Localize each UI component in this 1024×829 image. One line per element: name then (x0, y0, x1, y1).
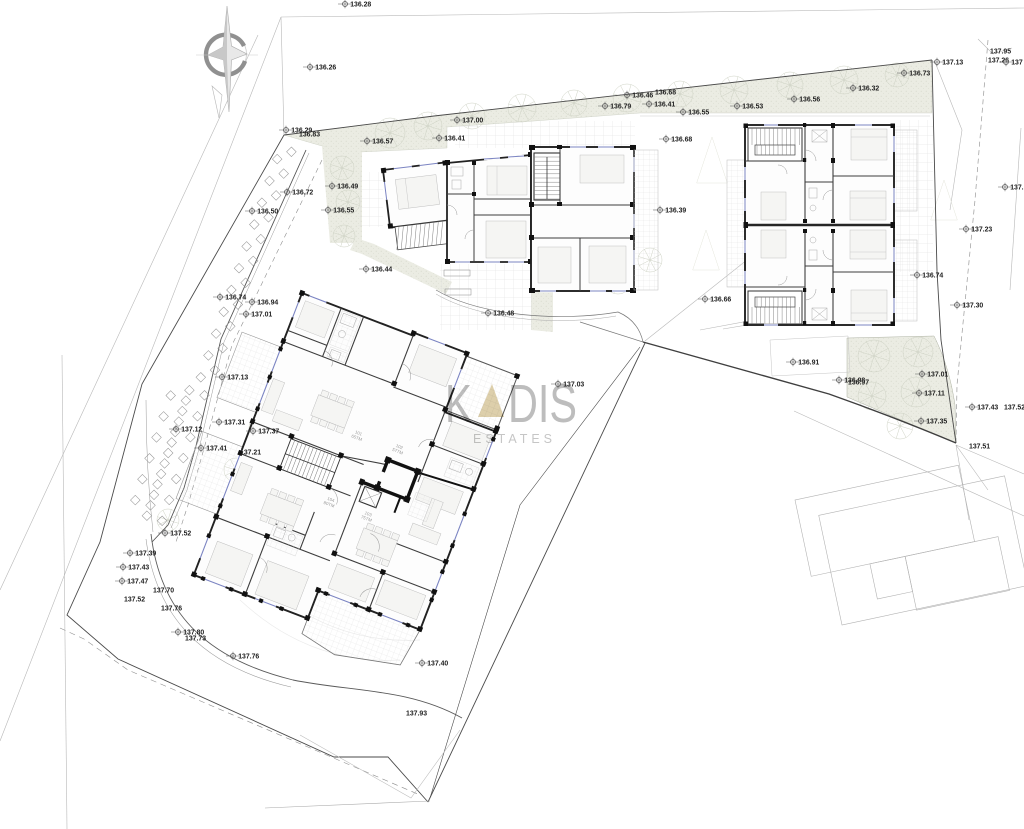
svg-text:136.41: 136.41 (654, 102, 675, 109)
svg-text:136.49: 136.49 (337, 184, 358, 191)
svg-text:137.00: 137.00 (462, 118, 483, 125)
svg-text:137.52: 137.52 (1004, 405, 1024, 412)
svg-text:137.93: 137.93 (406, 711, 427, 718)
svg-text:137.52: 137.52 (170, 531, 191, 538)
svg-text:136.32: 136.32 (858, 86, 879, 93)
svg-text:136.73: 136.73 (909, 71, 930, 78)
svg-text:136.74: 136.74 (922, 273, 943, 280)
svg-text:137.30: 137.30 (962, 303, 983, 310)
svg-text:K: K (445, 374, 472, 434)
svg-text:136.28: 136.28 (350, 2, 371, 9)
svg-text:136.53: 136.53 (742, 104, 763, 111)
svg-text:137.31: 137.31 (224, 420, 245, 427)
svg-text:137.40: 137.40 (427, 661, 448, 668)
svg-text:137.70: 137.70 (153, 588, 174, 595)
svg-text:136.83: 136.83 (299, 132, 320, 139)
svg-text:137.: 137. (1010, 185, 1023, 192)
svg-text:137: 137 (1011, 60, 1023, 67)
svg-text:136.41: 136.41 (444, 136, 465, 143)
svg-text:136.72: 136.72 (292, 190, 313, 197)
svg-text:137.11: 137.11 (924, 391, 945, 398)
svg-text:136.46: 136.46 (632, 93, 653, 100)
svg-text:136.91: 136.91 (798, 360, 819, 367)
svg-text:136.57: 136.57 (372, 139, 393, 146)
svg-text:137.13: 137.13 (942, 60, 963, 67)
svg-text:136.39: 136.39 (665, 208, 686, 215)
svg-text:137.01: 137.01 (927, 372, 948, 379)
svg-text:136.68: 136.68 (655, 90, 676, 97)
svg-text:136.68: 136.68 (671, 137, 692, 144)
svg-text:137.37: 137.37 (258, 429, 279, 436)
svg-text:137.47: 137.47 (127, 579, 148, 586)
svg-text:137.03: 137.03 (563, 382, 584, 389)
svg-text:136.79: 136.79 (610, 104, 631, 111)
svg-text:136.26: 136.26 (315, 65, 336, 72)
svg-text:136.44: 136.44 (371, 267, 392, 274)
svg-text:137.41: 137.41 (206, 446, 227, 453)
svg-text:137.39: 137.39 (135, 551, 156, 558)
svg-text:136.56: 136.56 (799, 97, 820, 104)
svg-text:137.76: 137.76 (238, 654, 259, 661)
svg-text:137.43: 137.43 (128, 565, 149, 572)
svg-text:137.23: 137.23 (971, 227, 992, 234)
svg-text:136.94: 136.94 (257, 300, 278, 307)
svg-text:137.76: 137.76 (161, 606, 182, 613)
svg-text:137.12: 137.12 (181, 427, 202, 434)
svg-text:137.35: 137.35 (926, 419, 947, 426)
svg-text:136.48: 136.48 (493, 311, 514, 318)
svg-text:137.43: 137.43 (977, 405, 998, 412)
svg-text:136.97: 136.97 (848, 380, 869, 387)
svg-text:137.21: 137.21 (240, 450, 261, 457)
svg-text:136.50: 136.50 (257, 209, 278, 216)
svg-text:137.51: 137.51 (969, 444, 990, 451)
svg-text:136.55: 136.55 (333, 208, 354, 215)
svg-text:137.73: 137.73 (185, 636, 206, 643)
svg-text:137.13: 137.13 (227, 375, 248, 382)
svg-text:136.66: 136.66 (710, 297, 731, 304)
svg-text:136.55: 136.55 (688, 110, 709, 117)
svg-text:137.52: 137.52 (124, 597, 145, 604)
svg-text:137.95: 137.95 (990, 49, 1011, 56)
svg-text:136.74: 136.74 (225, 295, 246, 302)
svg-text:137.01: 137.01 (251, 312, 272, 319)
